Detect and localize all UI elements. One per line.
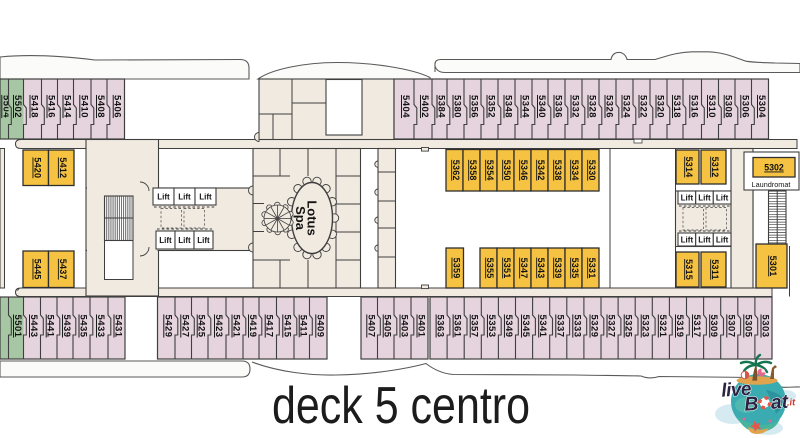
- svg-text:5336: 5336: [552, 95, 563, 118]
- svg-text:5328: 5328: [586, 95, 597, 118]
- svg-text:5306: 5306: [739, 95, 750, 118]
- svg-text:5312: 5312: [710, 157, 720, 178]
- svg-text:5401: 5401: [415, 314, 426, 337]
- svg-text:5435: 5435: [77, 314, 88, 337]
- svg-text:Lift: Lift: [157, 193, 170, 202]
- svg-text:.it: .it: [786, 397, 796, 409]
- svg-text:Lift: Lift: [716, 236, 729, 245]
- svg-text:5345: 5345: [520, 314, 531, 337]
- svg-text:5332: 5332: [569, 95, 580, 118]
- svg-text:5356: 5356: [468, 95, 479, 118]
- svg-text:5439: 5439: [61, 314, 72, 337]
- svg-text:5406: 5406: [112, 95, 123, 118]
- svg-text:5340: 5340: [536, 95, 547, 118]
- svg-text:5420: 5420: [32, 157, 42, 178]
- svg-text:5320: 5320: [654, 95, 665, 118]
- svg-text:5303: 5303: [759, 314, 770, 337]
- svg-text:5334: 5334: [570, 160, 580, 181]
- svg-text:5418: 5418: [28, 95, 39, 118]
- svg-text:5316: 5316: [688, 95, 699, 118]
- svg-text:5335: 5335: [570, 258, 580, 279]
- svg-text:5407: 5407: [365, 314, 376, 337]
- svg-text:5410: 5410: [78, 95, 89, 118]
- svg-text:Lift: Lift: [698, 194, 711, 203]
- svg-text:5342: 5342: [536, 160, 546, 181]
- svg-text:5409: 5409: [314, 314, 325, 337]
- svg-text:5327: 5327: [605, 314, 616, 337]
- svg-text:5329: 5329: [588, 314, 599, 337]
- svg-text:5433: 5433: [95, 314, 106, 337]
- svg-text:5402: 5402: [419, 95, 430, 118]
- svg-text:5403: 5403: [398, 314, 409, 337]
- svg-text:5347: 5347: [519, 258, 529, 279]
- svg-text:5408: 5408: [95, 95, 106, 118]
- svg-text:5337: 5337: [554, 314, 565, 337]
- svg-text:5419: 5419: [247, 314, 258, 337]
- svg-text:5318: 5318: [671, 95, 682, 118]
- svg-text:5344: 5344: [519, 95, 530, 118]
- svg-text:5441: 5441: [45, 314, 56, 337]
- svg-text:5423: 5423: [213, 314, 224, 337]
- svg-text:Lift: Lift: [178, 193, 191, 202]
- svg-text:5346: 5346: [519, 160, 529, 181]
- svg-text:Lift: Lift: [178, 236, 191, 245]
- svg-text:5425: 5425: [196, 314, 207, 337]
- svg-text:5421: 5421: [230, 314, 241, 337]
- svg-text:5380: 5380: [451, 95, 462, 118]
- svg-text:deck 5 centro: deck 5 centro: [272, 377, 530, 435]
- svg-text:5427: 5427: [179, 314, 190, 337]
- svg-text:5412: 5412: [58, 157, 68, 178]
- svg-text:5429: 5429: [162, 314, 173, 337]
- svg-text:5319: 5319: [674, 314, 685, 337]
- svg-text:5351: 5351: [502, 258, 512, 279]
- svg-text:5317: 5317: [691, 314, 702, 337]
- svg-text:5353: 5353: [486, 314, 497, 337]
- svg-text:5330: 5330: [587, 160, 597, 181]
- svg-text:5384: 5384: [435, 95, 446, 118]
- svg-text:5314: 5314: [684, 157, 694, 178]
- svg-text:5321: 5321: [657, 314, 668, 337]
- svg-text:5350: 5350: [502, 160, 512, 181]
- svg-text:5363: 5363: [435, 314, 446, 337]
- svg-text:5326: 5326: [603, 95, 614, 118]
- svg-text:Lift: Lift: [716, 194, 729, 203]
- svg-text:5338: 5338: [553, 160, 563, 181]
- svg-text:5304: 5304: [756, 95, 767, 118]
- svg-text:5443: 5443: [28, 314, 39, 337]
- svg-text:5411: 5411: [298, 315, 309, 338]
- svg-text:B: B: [744, 393, 760, 416]
- svg-text:5341: 5341: [537, 314, 548, 337]
- svg-text:Lift: Lift: [698, 236, 711, 245]
- svg-text:5404: 5404: [400, 95, 411, 118]
- svg-text:Laundromat: Laundromat: [752, 180, 791, 189]
- svg-text:5305: 5305: [742, 314, 753, 337]
- svg-text:5343: 5343: [536, 258, 546, 279]
- svg-text:5352: 5352: [485, 95, 496, 118]
- svg-text:5431: 5431: [112, 314, 123, 337]
- svg-text:5417: 5417: [264, 314, 275, 337]
- svg-text:5308: 5308: [723, 95, 734, 118]
- svg-text:5362: 5362: [451, 160, 461, 181]
- svg-text:5311: 5311: [710, 259, 720, 279]
- svg-text:5302: 5302: [764, 163, 784, 173]
- svg-text:5445: 5445: [32, 259, 42, 280]
- svg-text:5359: 5359: [451, 258, 461, 279]
- svg-text:5310: 5310: [706, 95, 717, 118]
- svg-text:5309: 5309: [708, 314, 719, 337]
- svg-text:5361: 5361: [452, 314, 463, 337]
- svg-text:5325: 5325: [623, 314, 634, 337]
- svg-text:5324: 5324: [620, 95, 631, 118]
- svg-text:5339: 5339: [553, 258, 563, 279]
- svg-text:Lift: Lift: [159, 236, 172, 245]
- svg-text:5354: 5354: [485, 160, 495, 181]
- svg-text:5348: 5348: [502, 95, 513, 118]
- svg-text:5415: 5415: [281, 314, 292, 337]
- svg-text:5331: 5331: [587, 258, 597, 279]
- svg-text:5414: 5414: [61, 95, 72, 118]
- svg-text:5502: 5502: [12, 95, 23, 118]
- svg-text:5301: 5301: [768, 256, 778, 277]
- svg-text:Lift: Lift: [197, 236, 210, 245]
- svg-text:5405: 5405: [382, 314, 393, 337]
- svg-text:5315: 5315: [684, 259, 694, 280]
- svg-text:5322: 5322: [637, 95, 648, 118]
- svg-text:5501: 5501: [12, 314, 23, 337]
- svg-text:Lift: Lift: [681, 194, 694, 203]
- svg-text:Lift: Lift: [199, 193, 212, 202]
- svg-text:5333: 5333: [571, 314, 582, 337]
- svg-text:5355: 5355: [485, 258, 495, 279]
- svg-text:5357: 5357: [469, 314, 480, 337]
- svg-text:5437: 5437: [58, 259, 68, 280]
- svg-text:5358: 5358: [468, 160, 478, 181]
- svg-text:Lift: Lift: [681, 236, 694, 245]
- svg-text:5323: 5323: [640, 314, 651, 337]
- svg-text:5307: 5307: [725, 314, 736, 337]
- svg-text:5416: 5416: [45, 95, 56, 118]
- svg-text:5349: 5349: [503, 314, 514, 337]
